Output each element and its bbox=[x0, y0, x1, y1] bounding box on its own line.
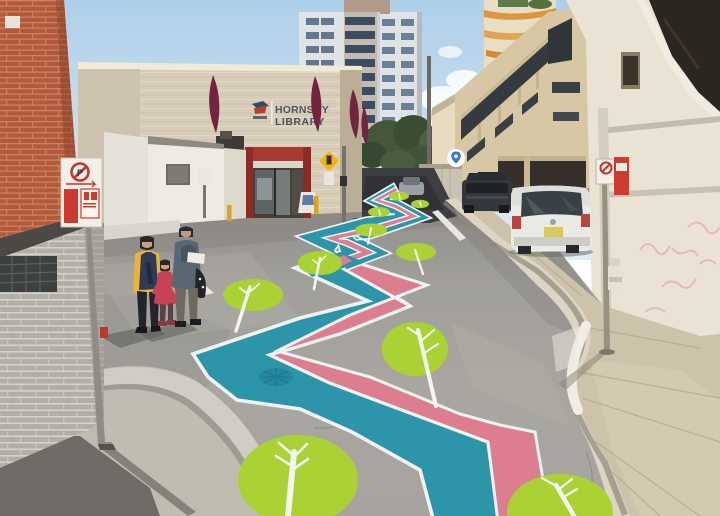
svg-text:P: P bbox=[77, 168, 83, 178]
